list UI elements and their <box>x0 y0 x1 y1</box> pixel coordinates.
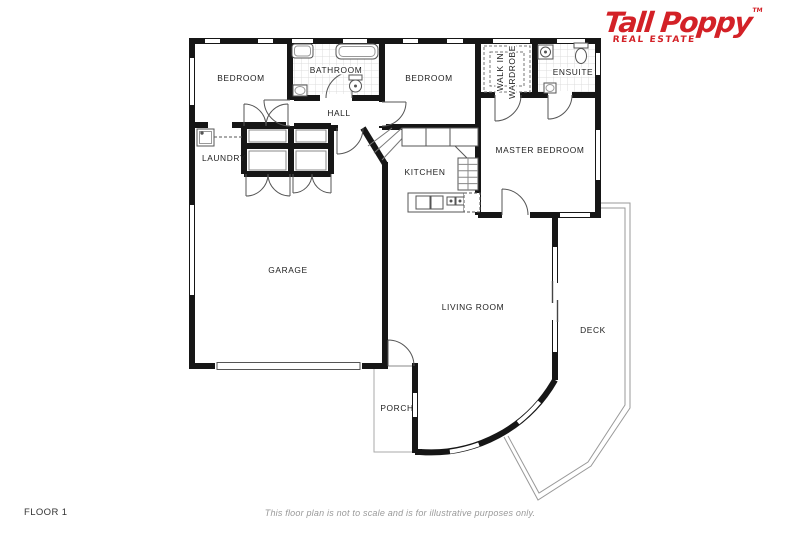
label-bedroom-2: BEDROOM <box>405 73 452 83</box>
tall-poppy-logo: Tall PoppyTM REAL ESTATE <box>602 8 786 45</box>
label-laundry: LAUNDRY <box>202 153 246 163</box>
wall-openings <box>208 95 572 366</box>
label-deck: DECK <box>580 325 606 335</box>
label-walk-in: WALK IN <box>495 53 505 91</box>
label-kitchen: KITCHEN <box>405 167 446 177</box>
floor-plan-drawing: BEDROOM BATHROOM BEDROOM WALK IN WARDROB… <box>0 0 800 533</box>
closet-boxes <box>249 130 326 170</box>
laundry-fixtures <box>197 129 242 146</box>
label-bathroom: BATHROOM <box>310 65 363 75</box>
windows <box>192 41 598 452</box>
label-garage: GARAGE <box>268 265 307 275</box>
label-bedroom-1: BEDROOM <box>217 73 264 83</box>
walls <box>192 38 601 453</box>
label-ensuite: ENSUITE <box>553 67 594 77</box>
disclaimer-text: This floor plan is not to scale and is f… <box>0 508 800 518</box>
label-master-bedroom: MASTER BEDROOM <box>496 145 585 155</box>
label-porch: PORCH <box>380 403 413 413</box>
deck-outline <box>504 203 630 500</box>
label-hall: HALL <box>327 108 350 118</box>
floor-plan-page: BEDROOM BATHROOM BEDROOM WALK IN WARDROB… <box>0 0 800 533</box>
trademark-symbol: TM <box>752 7 763 14</box>
label-wardrobe: WARDROBE <box>507 45 517 99</box>
garage-door <box>217 363 360 370</box>
label-living-room: LIVING ROOM <box>442 302 504 312</box>
